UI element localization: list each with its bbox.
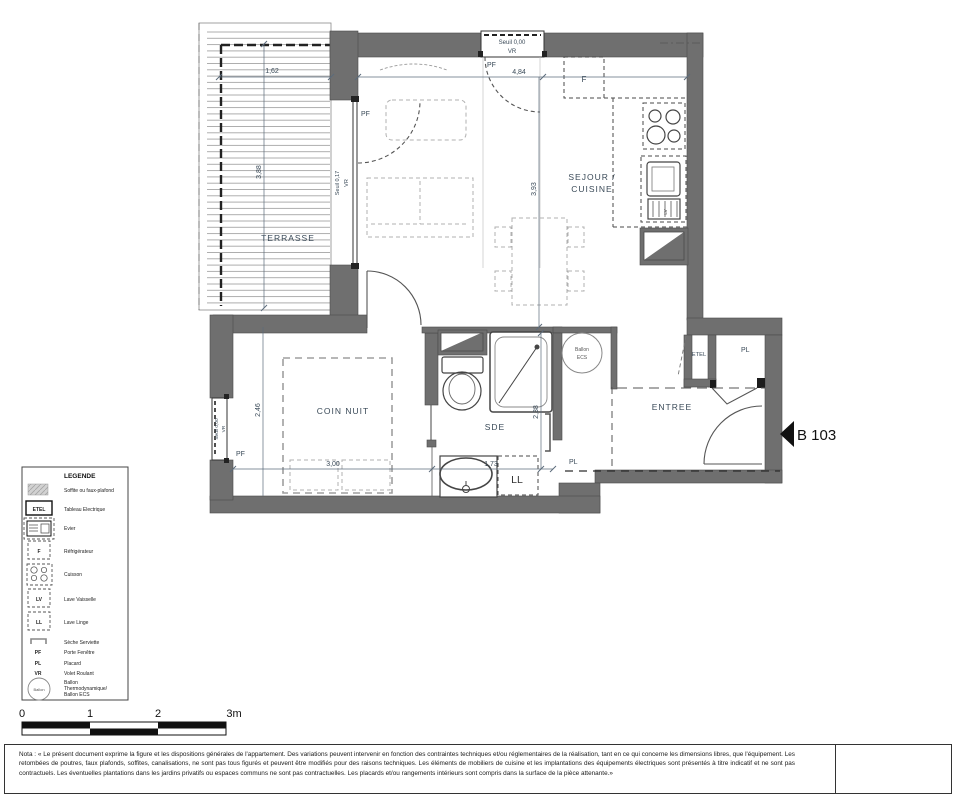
dining-table [495, 218, 584, 305]
vr-label: VR [221, 425, 227, 432]
etel-label: ETEL [692, 352, 707, 358]
water-heater-label-2: ECS [577, 355, 588, 361]
scale-segment [90, 722, 158, 729]
room-label-coin-nuit: COIN NUIT [317, 406, 369, 416]
room-label-sejour-2: CUISINE [571, 184, 612, 194]
legend-label: Lave Vaisselle [64, 597, 96, 603]
fridge-label: F [582, 75, 587, 84]
wall-coin-nuit-top [213, 315, 367, 333]
nota-text: Nota : « Le présent document exprime la … [19, 750, 795, 778]
legend-tag: Ballon [33, 687, 44, 692]
pf-label-top: PF [487, 62, 496, 69]
unit-id: B 103 [780, 421, 836, 447]
door-pl-closet [712, 388, 757, 404]
legend-tag: LV [36, 597, 43, 603]
scale-tick-2: 2 [155, 708, 161, 720]
bathroom: LL Ballon ECS [440, 332, 602, 497]
legend-label: Placard [64, 661, 81, 667]
kitchen: F LV [564, 57, 687, 227]
scale-segment [22, 729, 90, 736]
jamb-pl-right [757, 378, 765, 388]
legend-title: LEGENDE [64, 473, 96, 480]
couch [367, 178, 473, 237]
dim-terrasse-width: 1,62 [265, 68, 279, 75]
jamb-pl-left [710, 380, 716, 388]
legend-tag: PL [35, 661, 41, 667]
wall-entree-top [687, 318, 782, 335]
pl-label-top: PL [741, 347, 750, 354]
legend-panel: LEGENDE Soffite ou faux-plafond ETEL Tab… [22, 467, 128, 700]
legend-label: Evier [64, 526, 76, 532]
dishwasher-label: LV [663, 209, 668, 214]
nota-box: Nota : « Le présent document exprime la … [4, 744, 952, 794]
legend-tag: PF [35, 650, 41, 656]
bed [283, 358, 392, 493]
dim-coin-width: 3,00 [326, 461, 340, 468]
legend-tag: VR [35, 671, 42, 677]
wall-left-upper [210, 315, 233, 398]
washing-machine-label: LL [511, 474, 523, 486]
scale-segment [158, 729, 226, 736]
terrasse-area: TERRASSE [199, 23, 331, 310]
vr-label: VR [508, 49, 517, 55]
dim-sde-width: 1,73 [484, 461, 498, 468]
legend-tag: F [37, 549, 40, 555]
wall-bottom [210, 496, 600, 513]
wall-left-lower [210, 460, 233, 500]
wall-right-entree [765, 335, 782, 483]
nota-divider [835, 745, 836, 793]
dim-sejour-height: 3,93 [531, 182, 538, 196]
pf-label-terrasse: PF [361, 111, 370, 118]
wall-ballon-top [553, 327, 617, 333]
room-label-sejour-1: SEJOUR / [568, 172, 615, 182]
legend-label: Tableau Electrique [64, 507, 105, 513]
ceiling-element [380, 64, 447, 70]
threshold-label: Seuil 0,00 [214, 418, 220, 440]
toilet [442, 357, 483, 410]
floor-plan-drawing: TERRASSE [0, 0, 956, 745]
water-heater: Ballon ECS [562, 333, 602, 373]
legend-label: Porte Fenêtre [64, 650, 95, 656]
legend-label: Lave Linge [64, 620, 89, 626]
floor-plan-page: TERRASSE [0, 0, 956, 800]
room-label-terrasse: TERRASSE [261, 233, 315, 243]
towel-dryer [545, 414, 550, 451]
table-top-left [386, 100, 466, 140]
cooktop [643, 103, 685, 149]
dim-coin-height: 2,46 [255, 403, 262, 417]
wall-entree-bottom [595, 470, 782, 483]
soffite-swatch-icon [28, 484, 48, 495]
scale-tick-0: 0 [19, 708, 25, 720]
dim-sde-height: 2,38 [533, 405, 540, 419]
pf-label-coin: PF [236, 451, 245, 458]
threshold-label: Seuil 0,00 [499, 40, 526, 46]
vr-label: VR [344, 179, 350, 187]
dim-terrasse-height: 3,88 [256, 165, 263, 179]
scale-tick-3: 3m [226, 708, 241, 720]
dim-sejour-width: 4,84 [512, 69, 526, 76]
pl-label-bottom: PL [569, 459, 578, 466]
legend-label: Ballon ECS [64, 692, 90, 698]
wall-right-sejour [687, 33, 703, 320]
legend-tag: ETEL [33, 507, 46, 513]
room-label-sde: SDE [485, 422, 505, 432]
scale-bar: 0 1 2 3m [19, 708, 242, 735]
sink-dishwasher: LV [641, 156, 686, 222]
window-terrasse-sejour: Seuil 0,17 VR [335, 96, 420, 269]
water-heater-label-1: Ballon [575, 347, 589, 353]
threshold-label: Seuil 0,17 [335, 171, 341, 195]
legend-label: Cuisson [64, 572, 82, 578]
door-sde [427, 405, 436, 496]
shower [490, 332, 552, 412]
legend-label: Volet Roulant [64, 671, 94, 677]
scale-segment [90, 729, 158, 736]
wall-wc-partition [425, 333, 438, 405]
soffit-sejour [640, 228, 688, 265]
door-main-entrance [704, 406, 762, 464]
legend-label: Sèche Serviette [64, 640, 100, 646]
wall-terrasse-upper [330, 31, 358, 100]
wall-passage [611, 327, 617, 389]
scale-tick-1: 1 [87, 708, 93, 720]
scale-segment [22, 722, 90, 729]
room-label-entree: ENTREE [652, 402, 692, 412]
scale-segment [158, 722, 226, 729]
legend-label: Soffite ou faux-plafond [64, 488, 114, 494]
wall-terrasse-lower [330, 265, 358, 317]
door-sejour-coin-nuit [367, 271, 421, 328]
soffit-wc [438, 330, 487, 355]
wall-sde-right [553, 333, 562, 440]
legend-tag: LL [36, 620, 42, 626]
window-coin-nuit: Seuil 0,00 VR [212, 394, 229, 463]
legend-label: Réfrigérateur [64, 549, 94, 555]
unit-id-label: B 103 [797, 427, 836, 444]
